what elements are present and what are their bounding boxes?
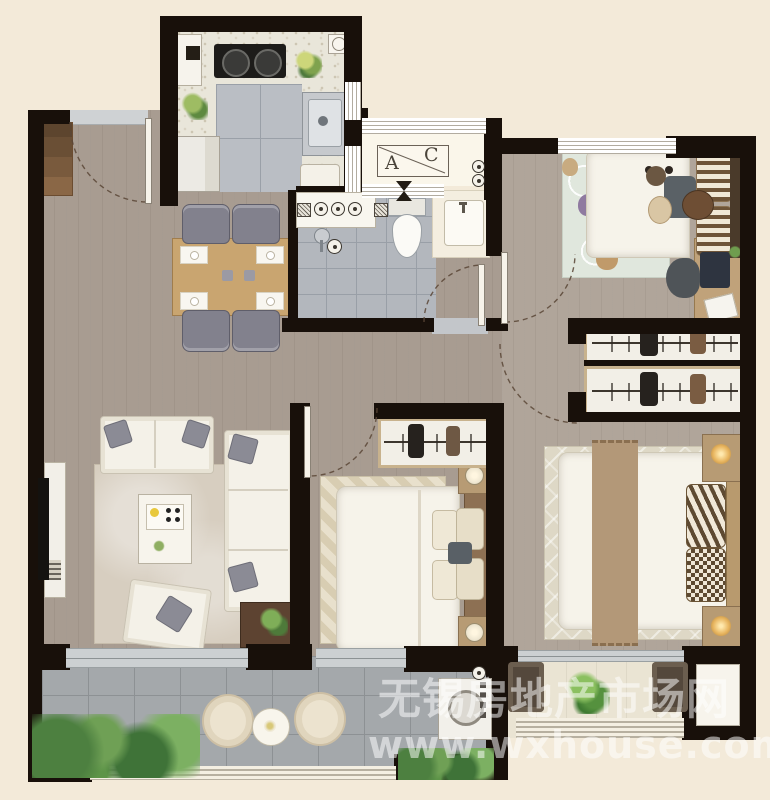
entry-door-arc [70, 122, 148, 202]
floor-plan: A C [0, 0, 770, 800]
bedroom-door-leaf [304, 406, 311, 478]
watermark-line2: www.wxhouse.com [368, 724, 740, 767]
kids-door-arc [505, 254, 575, 322]
valve-symbol-icon [396, 181, 412, 201]
bedroom-door-arc [309, 408, 377, 476]
watermark-line1: 无锡房地产市场网 [368, 676, 740, 724]
entry-door-leaf [145, 118, 152, 204]
kids-door-leaf [501, 252, 508, 324]
bathroom-door-leaf [478, 264, 485, 326]
watermark: 无锡房地产市场网 www.wxhouse.com [368, 676, 740, 767]
master-door-arc [500, 344, 578, 423]
bathroom-door-arc [424, 265, 481, 322]
ac-diagonal-line [379, 147, 445, 173]
